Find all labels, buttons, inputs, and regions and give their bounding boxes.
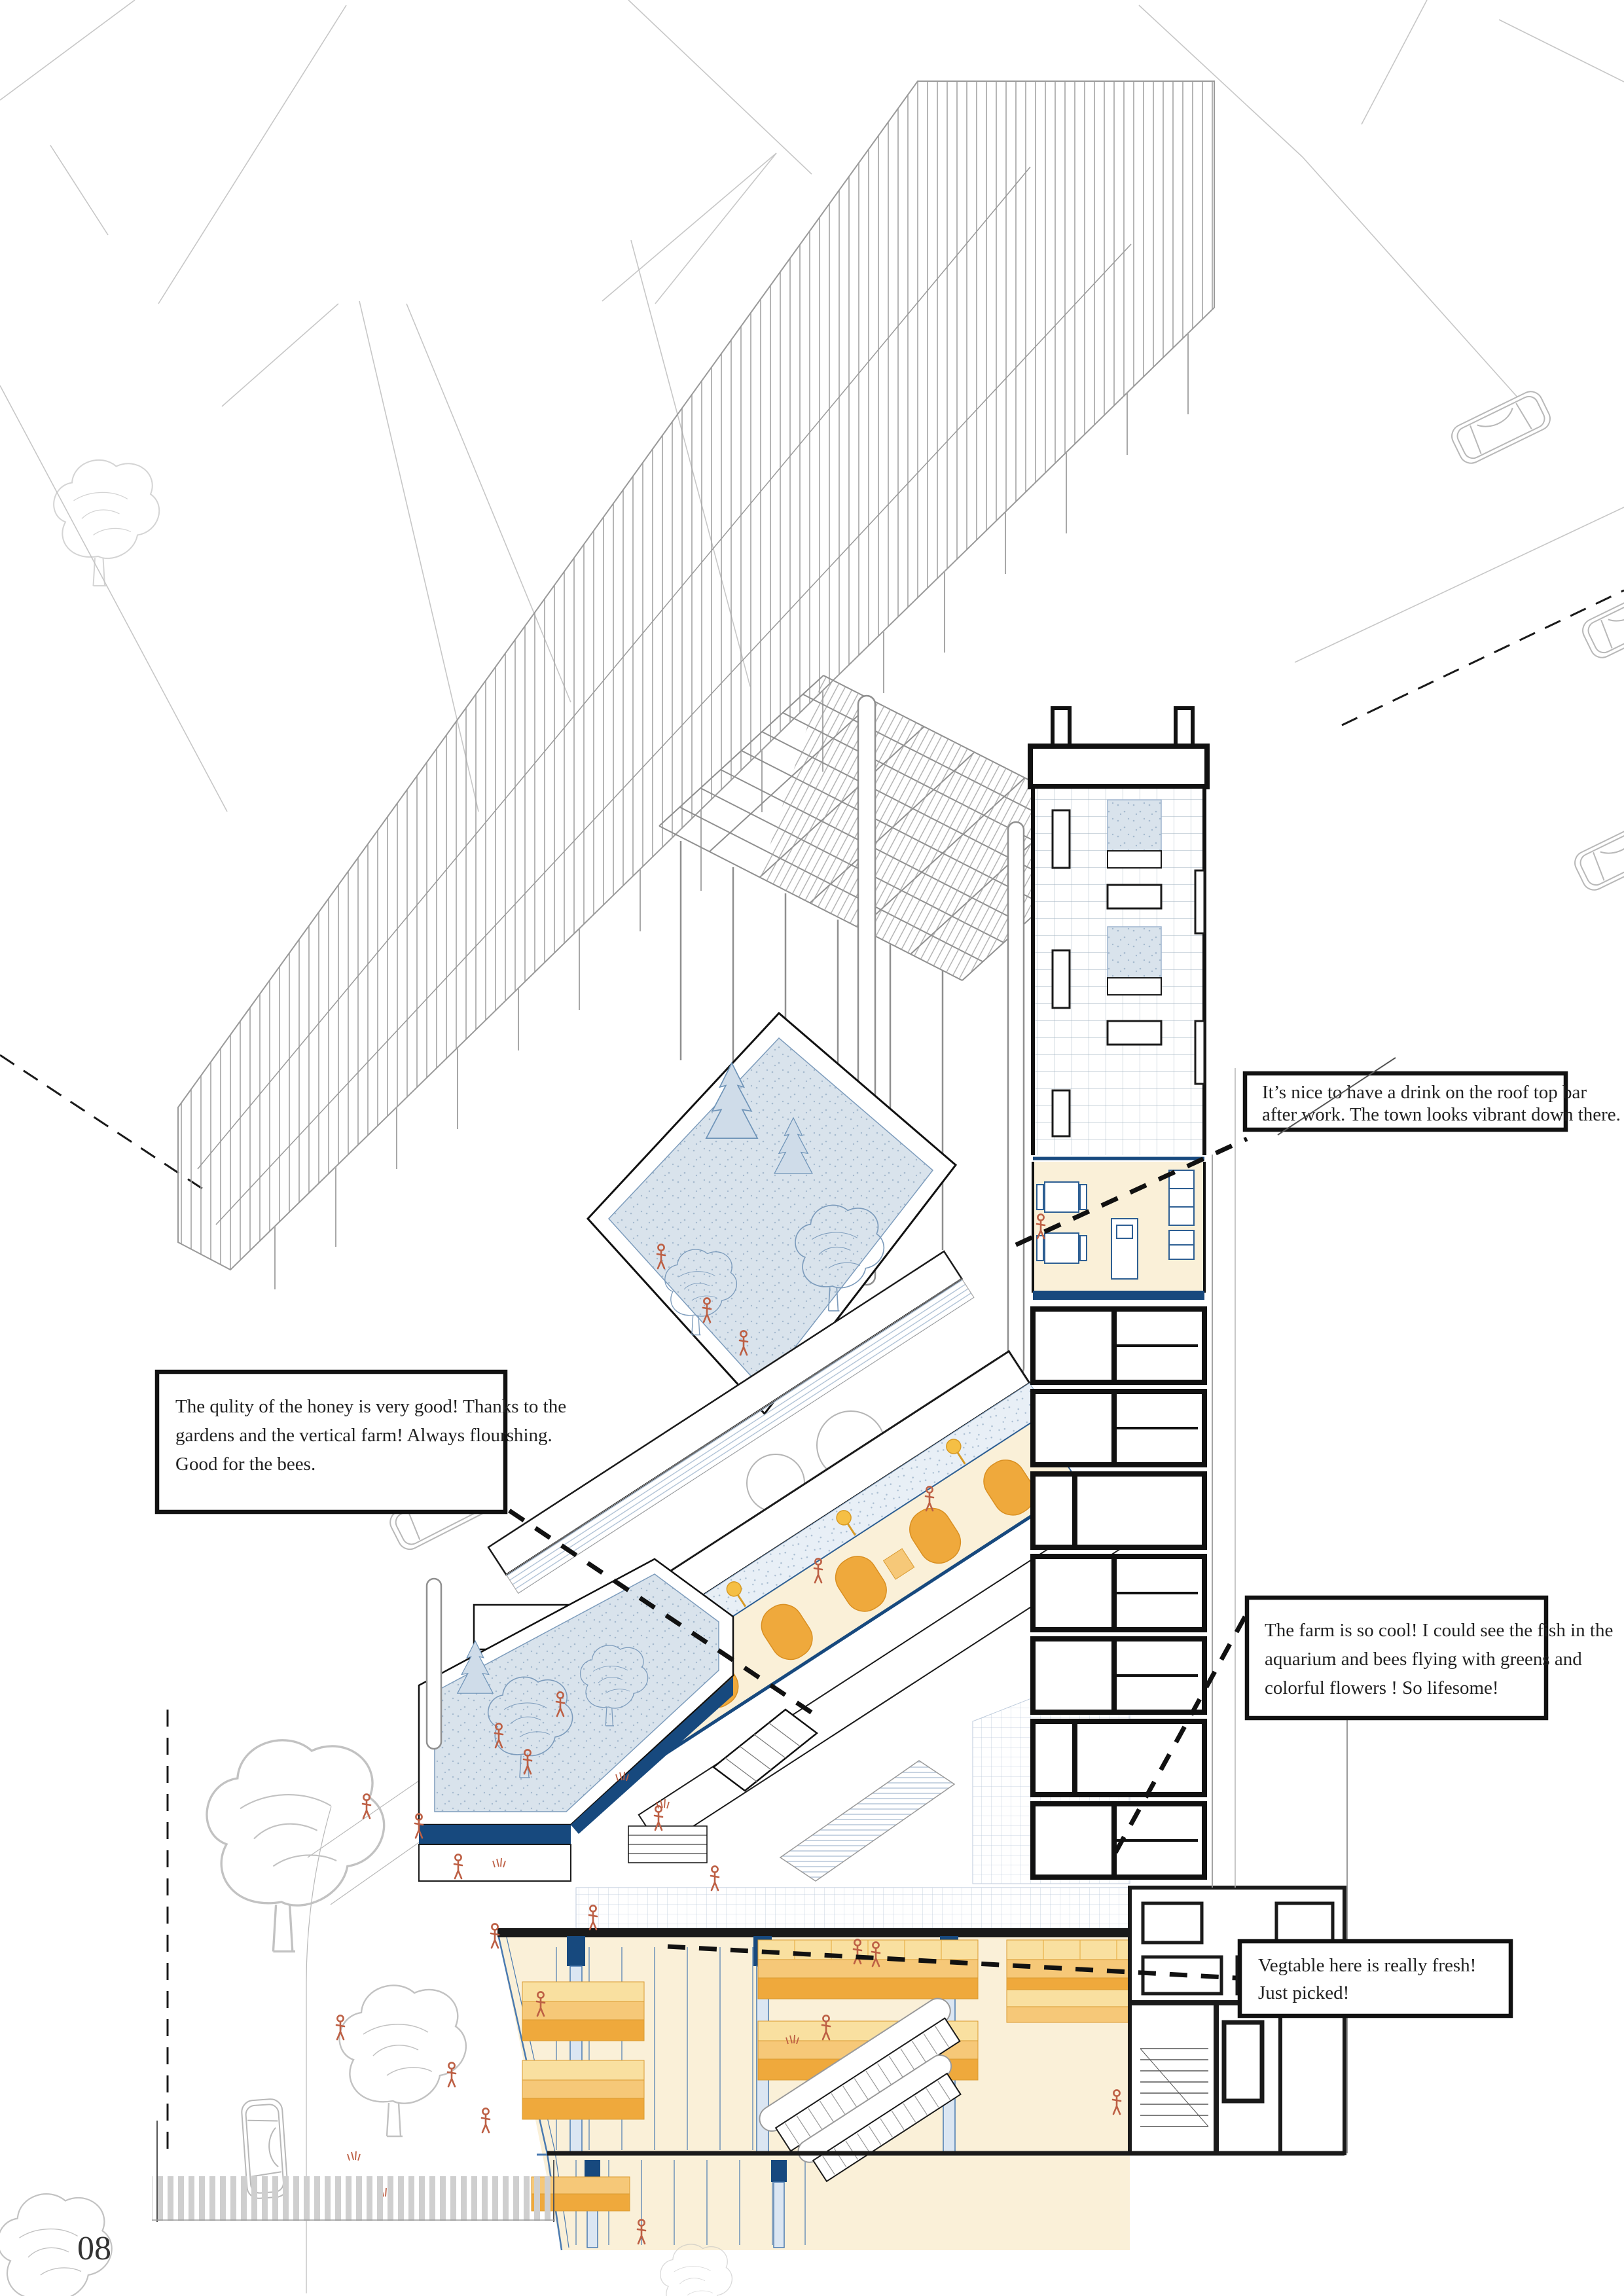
footer: 08	[77, 2121, 555, 2267]
car-sketch	[1448, 387, 1554, 467]
car-sketch	[1579, 582, 1624, 661]
roof-parapet	[1030, 746, 1207, 787]
callout-vegetable: Vegtable here is really fresh! Just pick…	[1240, 1941, 1511, 2016]
tree-sketch	[54, 460, 159, 586]
callout-honey: The qulity of the honey is very good! Th…	[157, 1372, 571, 1512]
axonometric-drawing: It’s nice to have a drink on the roof to…	[0, 0, 1624, 2296]
bollard	[427, 1579, 441, 1749]
roof-terrace	[1033, 789, 1204, 1155]
page-number: 08	[77, 2230, 111, 2267]
road-centerline	[0, 1055, 208, 1193]
architecture-board-page: It’s nice to have a drink on the roof to…	[0, 0, 1624, 2296]
callout-rooftop-bar: It’s nice to have a drink on the roof to…	[1245, 1073, 1621, 1130]
car-sketch	[1571, 814, 1624, 893]
fence-stripes	[152, 2176, 555, 2221]
tree-sketch	[207, 1740, 384, 1952]
road-centerline	[1342, 590, 1624, 725]
rooftop-bar-floor	[1033, 1158, 1204, 1300]
tree-sketch	[340, 1985, 466, 2136]
callout-farm-text: The farm is so cool! I could see the fis…	[1265, 1620, 1618, 1698]
tower-section	[1030, 708, 1212, 1888]
apartment-floors	[1033, 1309, 1204, 1877]
callout-farm: The farm is so cool! I could see the fis…	[1247, 1598, 1618, 1718]
tree-sketch	[660, 2244, 732, 2296]
garden-terrace-upper	[588, 1013, 956, 1414]
market-hall	[499, 1936, 1178, 2250]
round-column	[1008, 822, 1024, 1376]
